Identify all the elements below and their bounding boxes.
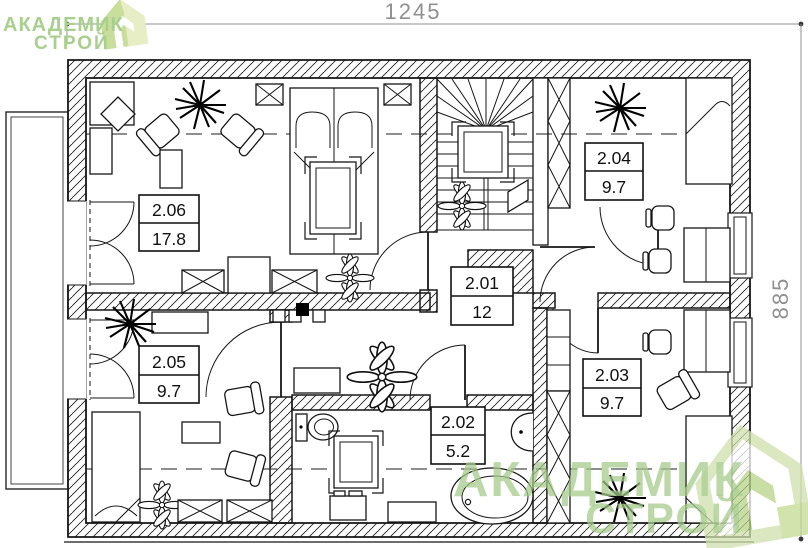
shelf xyxy=(90,128,112,174)
armchair xyxy=(654,368,701,414)
room-205-furniture xyxy=(92,299,272,529)
desk-chair xyxy=(646,206,674,230)
accessory xyxy=(349,491,362,496)
stand xyxy=(330,496,366,520)
bed xyxy=(686,78,732,184)
room-area: 9.7 xyxy=(600,393,624,413)
vent-shaft xyxy=(548,78,570,208)
room-number: 2.03 xyxy=(595,365,629,385)
room-label-2-04: 2.04 9.7 xyxy=(585,143,643,200)
armchair xyxy=(217,110,265,158)
shower-shaft xyxy=(329,431,383,493)
plant-icon xyxy=(175,80,226,129)
floor-plan-drawing: 1245 885 xyxy=(0,0,808,548)
balcony-door-upper xyxy=(67,200,135,286)
side-table xyxy=(160,150,182,188)
nightstand xyxy=(384,84,411,105)
desk-chair xyxy=(643,330,671,354)
desk xyxy=(684,310,730,372)
room-label-2-06: 2.06 17.8 xyxy=(139,195,199,251)
desk-chair xyxy=(643,249,671,273)
window-upper-right xyxy=(728,213,752,278)
cabinet xyxy=(388,502,436,522)
accessory xyxy=(334,491,345,496)
door-bathroom xyxy=(410,345,465,400)
cabinet xyxy=(178,500,222,522)
brand-line2: СТРОЙ xyxy=(34,32,110,54)
sink xyxy=(511,413,533,451)
plant-icon xyxy=(438,182,486,230)
armchair xyxy=(223,447,266,487)
console-table xyxy=(294,368,340,393)
room-label-2-01: 2.01 12 xyxy=(451,267,513,325)
watermark-line2: СТРОЙ xyxy=(585,494,744,543)
desk xyxy=(684,228,730,282)
coffee-table xyxy=(182,422,220,443)
toilet xyxy=(296,414,338,441)
floor-plan-page: 1245 885 xyxy=(0,0,808,548)
window-lower-right xyxy=(728,318,752,387)
brand-logo: АКАДЕМИК СТРОЙ xyxy=(3,0,148,54)
room-number: 2.05 xyxy=(152,352,186,372)
room-label-2-03: 2.03 9.7 xyxy=(583,359,641,416)
room-number: 2.04 xyxy=(597,148,631,168)
armchair xyxy=(223,381,264,419)
door-livingroom xyxy=(370,232,428,290)
room-number: 2.01 xyxy=(465,273,499,293)
balcony xyxy=(6,112,68,489)
room-area: 9.7 xyxy=(157,381,181,401)
bed xyxy=(92,412,140,522)
room-label-2-05: 2.05 9.7 xyxy=(139,346,199,403)
room-area: 17.8 xyxy=(152,229,186,249)
stair-direction-arrow xyxy=(508,180,528,212)
chimney-shaft-bedroom xyxy=(305,157,361,239)
room-area: 9.7 xyxy=(602,177,626,197)
chimney-shaft-stairs xyxy=(452,122,514,182)
shelf xyxy=(152,312,208,333)
room-area: 12 xyxy=(472,302,491,322)
room-number: 2.06 xyxy=(152,200,186,220)
cabinet-row xyxy=(182,257,317,293)
top-dimension: 1245 xyxy=(65,0,804,44)
right-dimension-value: 885 xyxy=(768,277,793,320)
nightstand xyxy=(256,84,283,105)
door-room-205 xyxy=(206,322,281,397)
room-206-furniture xyxy=(90,80,411,302)
top-dimension-value: 1245 xyxy=(385,0,442,24)
balcony-door-lower xyxy=(67,318,135,400)
room-number: 2.02 xyxy=(441,412,475,432)
plant-icon xyxy=(595,83,646,132)
cabinet xyxy=(227,500,272,522)
